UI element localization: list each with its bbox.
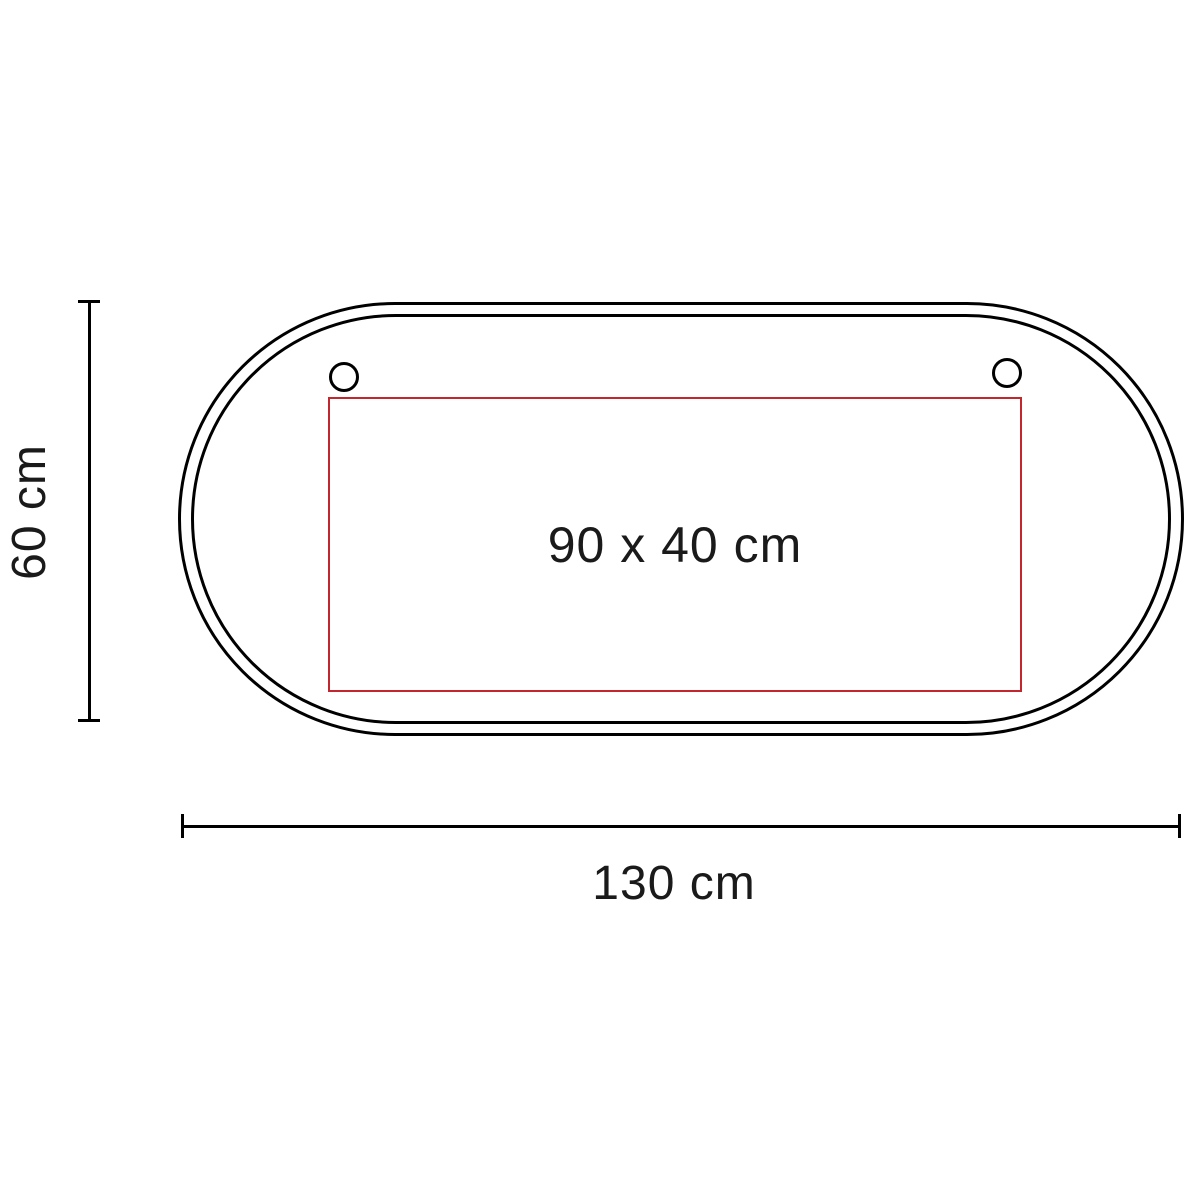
diagram-canvas: 90 x 40 cm 60 cm 130 cm: [0, 0, 1200, 1200]
width-dimension-cap-right: [1178, 814, 1181, 838]
height-dimension-cap-bottom: [78, 719, 100, 722]
grommet-hole-right-icon: [992, 358, 1022, 388]
print-area-rect: 90 x 40 cm: [328, 397, 1022, 692]
grommet-hole-left-icon: [329, 362, 359, 392]
print-area-label: 90 x 40 cm: [548, 516, 803, 574]
width-dimension-line: [182, 825, 1180, 828]
height-dimension-label: 60 cm: [0, 412, 60, 612]
height-dimension-line: [88, 302, 91, 722]
height-dimension-cap-top: [78, 300, 100, 303]
width-dimension-cap-left: [181, 814, 184, 838]
width-dimension-label: 130 cm: [574, 854, 774, 914]
